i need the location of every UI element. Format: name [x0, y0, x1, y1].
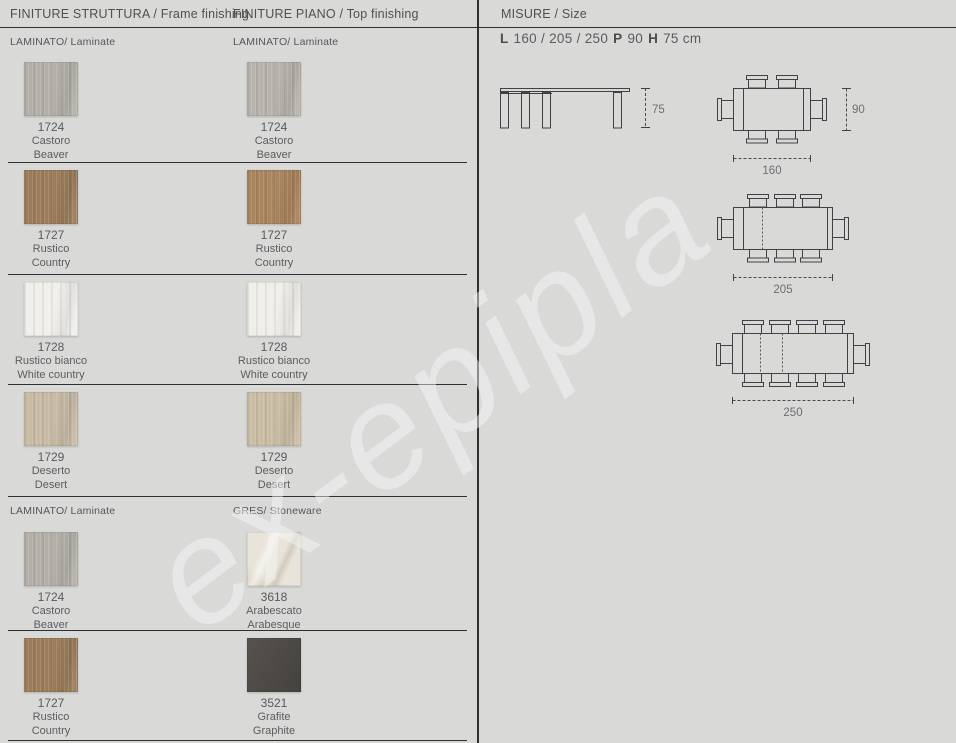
finish-item: 1724CastoroBeaver	[12, 525, 90, 632]
finish-name-english: Arabesque	[235, 618, 313, 632]
finish-code: 1724	[12, 120, 90, 134]
section-label-stoneware: GRES/ Stoneware	[233, 505, 322, 517]
finish-name-italian: Deserto	[235, 464, 313, 478]
size-title: MISURE / Size	[501, 7, 587, 21]
finish-code: 1724	[235, 120, 313, 134]
finish-code: 1728	[235, 340, 313, 354]
finish-swatch	[247, 532, 301, 586]
finish-item: 1729DesertoDesert	[12, 385, 90, 492]
finish-row: 1724CastoroBeaver3618ArabescatoArabesque	[8, 525, 467, 631]
finish-code: 3618	[235, 590, 313, 604]
finish-name-italian: Castoro	[12, 134, 90, 148]
finish-item: 1724CastoroBeaver	[235, 55, 313, 162]
finish-name-english: Country	[12, 256, 90, 270]
finish-name-english: Country	[235, 256, 313, 270]
size-value: 75 cm	[663, 31, 701, 46]
finish-item: 3521GrafiteGraphite	[235, 631, 313, 738]
finish-row: 1727RusticoCountry1727RusticoCountry	[8, 163, 467, 275]
depth-dimension-label: 90	[852, 104, 865, 116]
finish-swatch	[24, 392, 78, 446]
section-label-laminate-top: LAMINATO/ Laminate	[233, 36, 338, 48]
finish-item: 3618ArabescatoArabesque	[235, 525, 313, 632]
finish-item: 1728Rustico biancoWhite country	[12, 275, 90, 382]
finish-item: 1727RusticoCountry	[12, 163, 90, 270]
size-value: 160 / 205 / 250	[514, 31, 609, 46]
finish-swatch	[24, 638, 78, 692]
finish-swatch	[24, 170, 78, 224]
finish-name-italian: Arabescato	[235, 604, 313, 618]
size-summary-line: L160 / 205 / 250P90H75 cm	[500, 31, 706, 46]
size-key: L	[500, 31, 509, 46]
finish-row: 1724CastoroBeaver1724CastoroBeaver	[8, 55, 467, 163]
finish-swatch	[247, 638, 301, 692]
finish-name-italian: Castoro	[12, 604, 90, 618]
finish-swatch	[247, 62, 301, 116]
finish-name-english: White country	[235, 368, 313, 382]
finish-name-english: Beaver	[12, 148, 90, 162]
finish-swatch	[24, 62, 78, 116]
finish-name-english: Desert	[235, 478, 313, 492]
size-key: H	[648, 31, 658, 46]
finish-item: 1729DesertoDesert	[235, 385, 313, 492]
finish-code: 1724	[12, 590, 90, 604]
finish-item: 1724CastoroBeaver	[12, 55, 90, 162]
top-finishing-title: FINITURE PIANO / Top finishing	[233, 7, 419, 21]
section-label-row: LAMINATO/ Laminate GRES/ Stoneware	[0, 497, 468, 525]
finish-name-english: White country	[12, 368, 90, 382]
finish-name-english: Beaver	[12, 618, 90, 632]
finish-name-english: Desert	[12, 478, 90, 492]
finish-rows-section1: 1724CastoroBeaver1724CastoroBeaver1727Ru…	[0, 55, 468, 497]
size-key: P	[613, 31, 622, 46]
finish-code: 1728	[12, 340, 90, 354]
size-value: 90	[627, 31, 643, 46]
finish-swatch	[247, 392, 301, 446]
finish-code: 1727	[12, 696, 90, 710]
section-label-laminate-frame: LAMINATO/ Laminate	[10, 36, 115, 48]
finish-swatch	[24, 282, 78, 336]
section-label-laminate-frame-2: LAMINATO/ Laminate	[10, 505, 115, 517]
frame-finishing-title: FINITURE STRUTTURA / Frame finishing	[10, 7, 249, 21]
length-205-label: 205	[773, 284, 792, 296]
finish-code: 1729	[235, 450, 313, 464]
length-160-label: 160	[762, 165, 781, 177]
finish-name-english: Graphite	[235, 724, 313, 738]
length-250-label: 250	[783, 407, 802, 419]
table-side-view-drawing: 75	[495, 78, 680, 140]
finish-name-italian: Rustico	[235, 242, 313, 256]
finishes-area: LAMINATO/ Laminate LAMINATO/ Laminate 17…	[0, 28, 468, 741]
height-dimension-label: 75	[652, 104, 665, 116]
finish-name-english: Beaver	[235, 148, 313, 162]
finish-name-italian: Deserto	[12, 464, 90, 478]
table-top-view-160-drawing: 160 90	[700, 60, 880, 182]
finish-name-italian: Grafite	[235, 710, 313, 724]
finish-swatch	[247, 282, 301, 336]
vertical-divider	[477, 0, 479, 743]
finish-name-italian: Castoro	[235, 134, 313, 148]
finish-name-italian: Rustico	[12, 710, 90, 724]
finish-item: 1727RusticoCountry	[12, 631, 90, 738]
finish-name-italian: Rustico bianco	[12, 354, 90, 368]
finish-code: 1729	[12, 450, 90, 464]
table-top-view-205-drawing: 205	[700, 185, 880, 297]
finish-row: 1727RusticoCountry3521GrafiteGraphite	[8, 631, 467, 741]
finish-swatch	[24, 532, 78, 586]
finish-item: 1727RusticoCountry	[235, 163, 313, 270]
table-top-view-250-drawing: 250	[700, 310, 892, 422]
section-label-row: LAMINATO/ Laminate LAMINATO/ Laminate	[0, 28, 468, 55]
finish-code: 1727	[235, 228, 313, 242]
finish-swatch	[247, 170, 301, 224]
finish-code: 1727	[12, 228, 90, 242]
finish-item: 1728Rustico biancoWhite country	[235, 275, 313, 382]
finish-code: 3521	[235, 696, 313, 710]
catalog-page: FINITURE STRUTTURA / Frame finishing FIN…	[0, 0, 956, 743]
finish-rows-section2: 1724CastoroBeaver3618ArabescatoArabesque…	[0, 525, 468, 741]
finish-name-italian: Rustico bianco	[235, 354, 313, 368]
finish-row: 1729DesertoDesert1729DesertoDesert	[8, 385, 467, 497]
finish-name-italian: Rustico	[12, 242, 90, 256]
finish-name-english: Country	[12, 724, 90, 738]
finish-row: 1728Rustico biancoWhite country1728Rusti…	[8, 275, 467, 385]
